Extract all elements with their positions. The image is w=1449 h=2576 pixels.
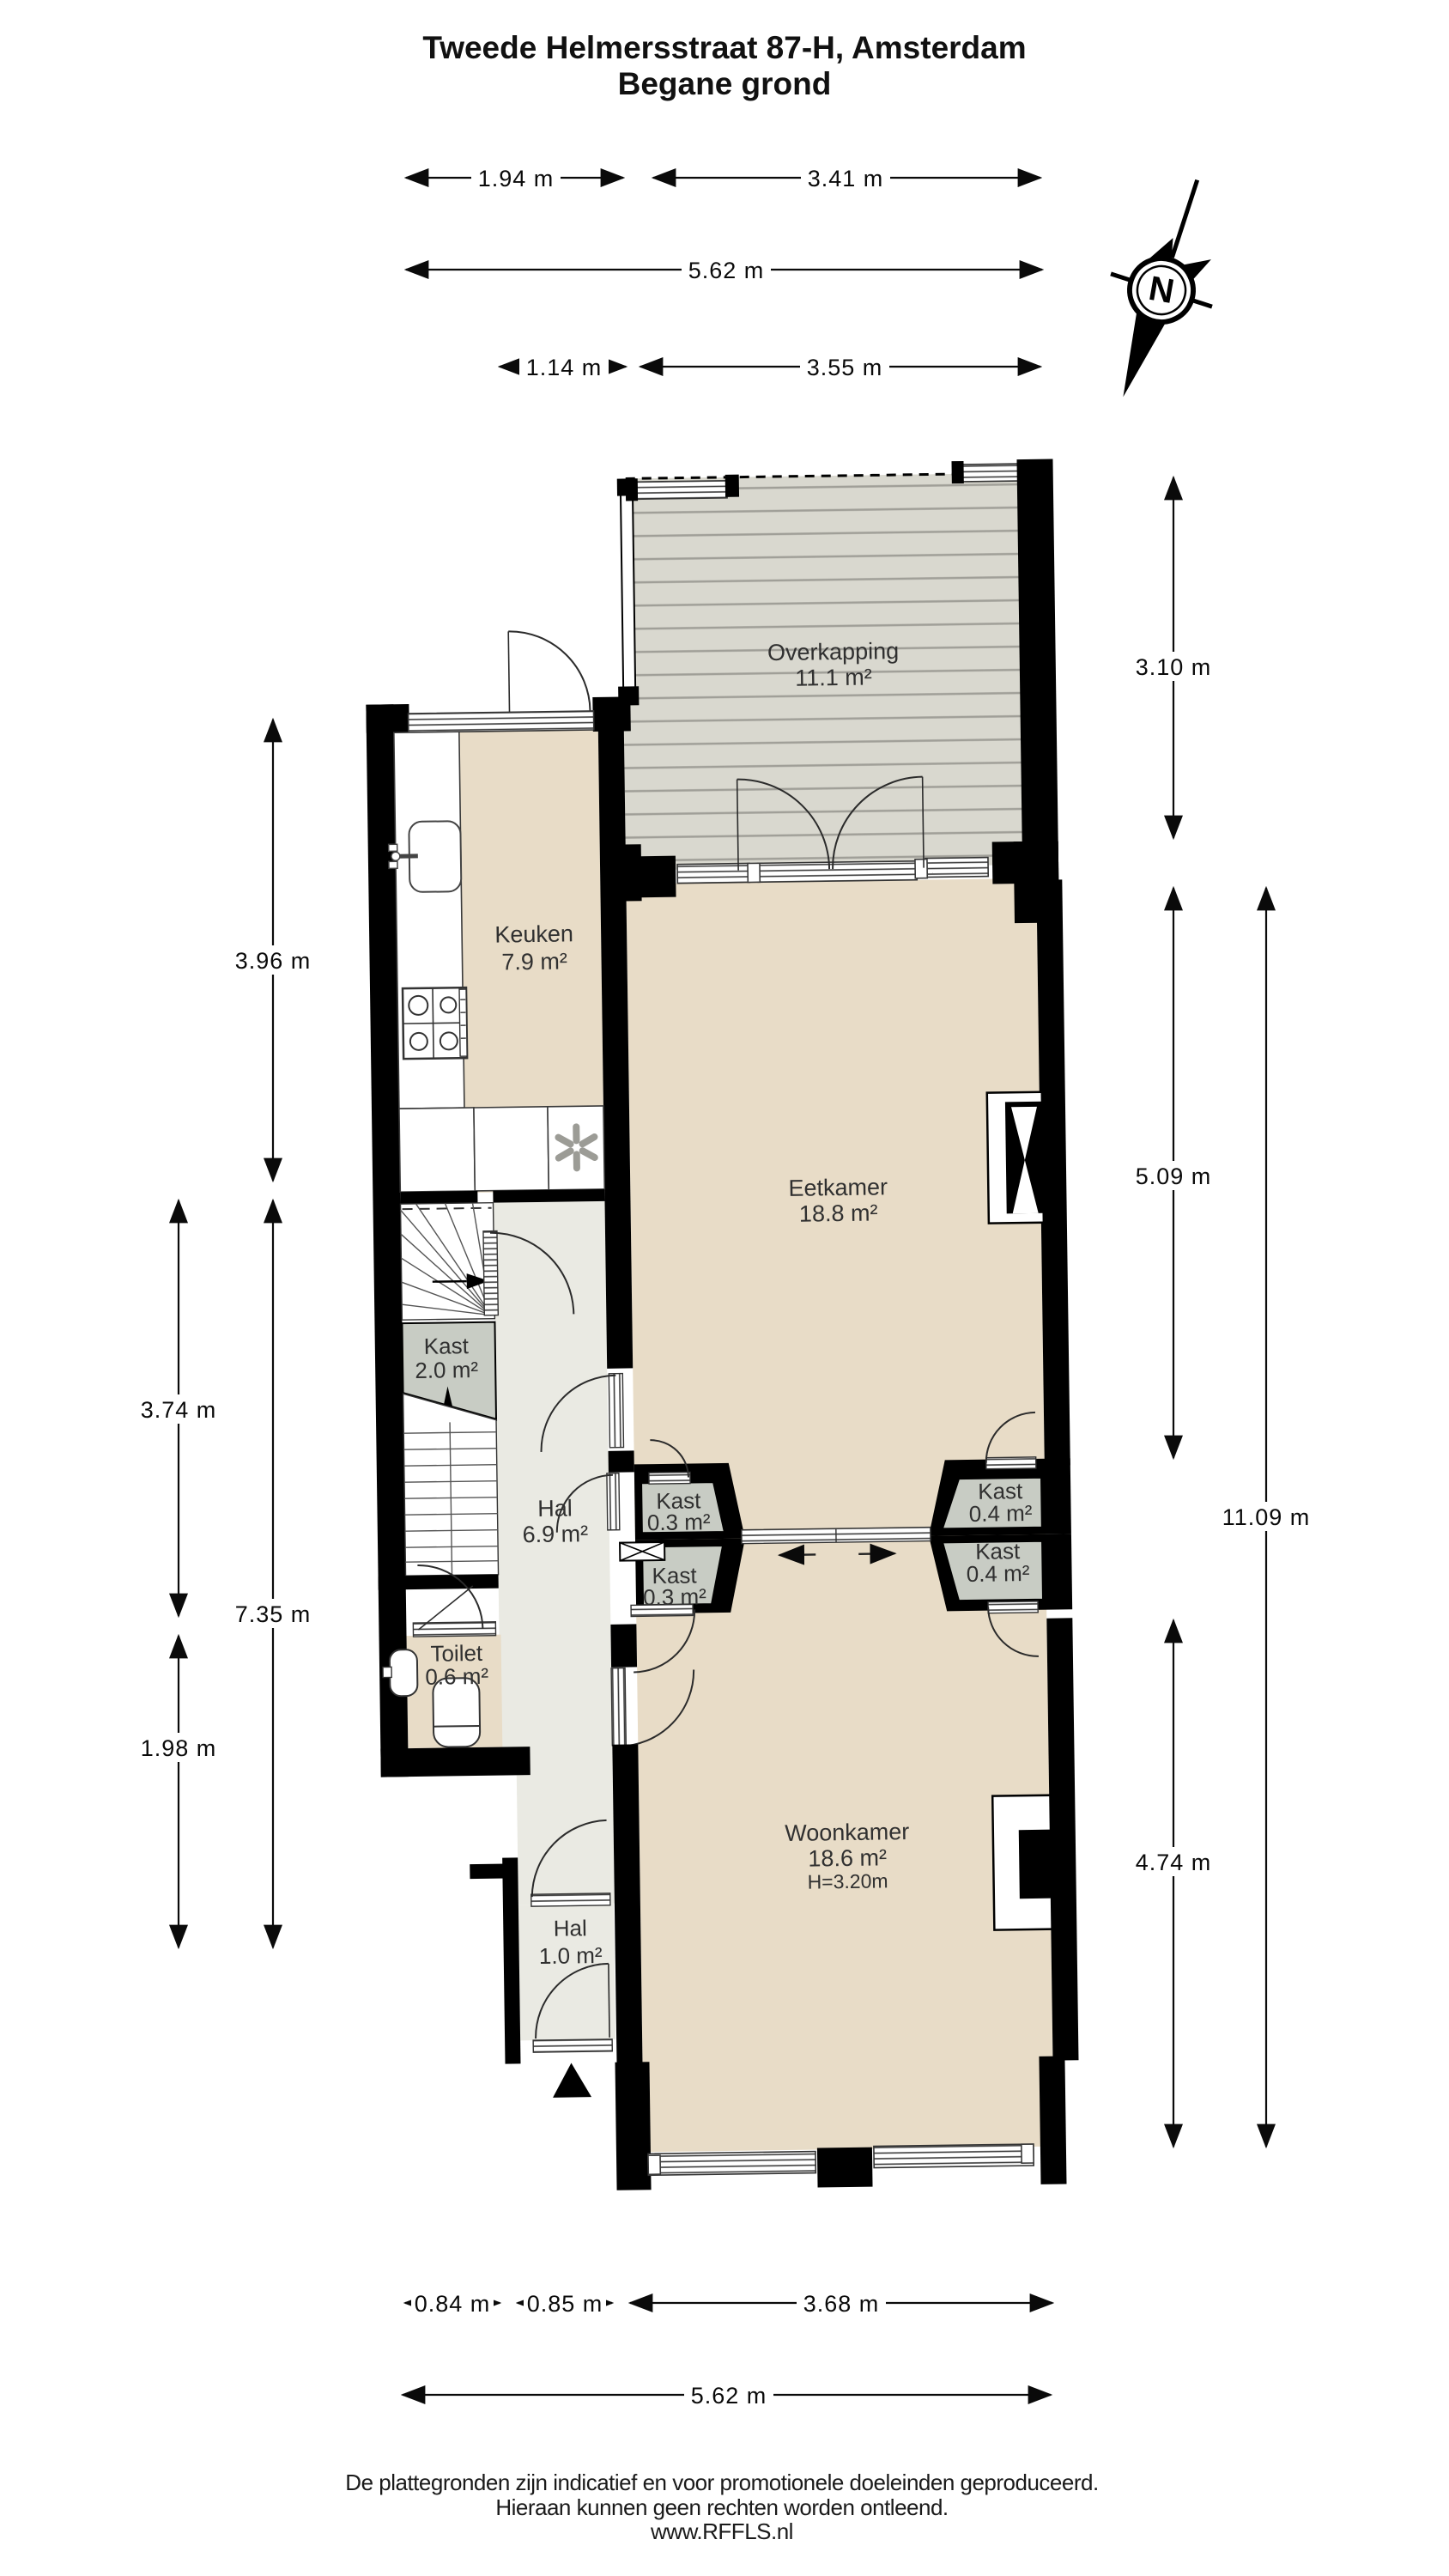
- keuken-bottom-wall-left: [400, 1191, 477, 1204]
- floorplan-page: Tweede Helmersstraat 87-H, Amsterdam Beg…: [0, 0, 1449, 2576]
- kitchen-unit-2: [474, 1107, 549, 1191]
- overkapping-top-right-window: [951, 460, 1018, 483]
- label-kast-lb-area: 0.3 m²: [643, 1583, 706, 1610]
- label-kast-rt-area: 0.4 m²: [969, 1500, 1033, 1527]
- footer-line1: De plattegronden zijn indicatief en voor…: [345, 2470, 1098, 2495]
- footer-line3: www.RFFLS.nl: [650, 2518, 793, 2544]
- dim-top-562: 5.62 m: [688, 258, 765, 283]
- north-compass-icon: N: [1076, 163, 1247, 414]
- chimney-shaft: [987, 1092, 1044, 1224]
- jamb-1: [748, 863, 760, 882]
- hal-floor: [493, 1201, 614, 1905]
- keuken-topleft-corner: [366, 704, 409, 733]
- label-eetkamer: Eetkamer: [788, 1174, 888, 1201]
- floorplan-drawing: Tweede Helmersstraat 87-H, Amsterdam Beg…: [0, 0, 1449, 2576]
- stove: [403, 987, 467, 1059]
- label-hal-entree: Hal: [554, 1915, 587, 1941]
- kitchen-unit-fan: [548, 1106, 604, 1190]
- label-woonkamer-area: 18.6 m²: [808, 1844, 887, 1871]
- glazed-panel: [620, 1542, 664, 1561]
- label-overkapping-area: 11.1 m²: [795, 664, 872, 690]
- eetkamer-topleft-step: [634, 856, 676, 898]
- label-woonkamer: Woonkamer: [785, 1819, 909, 1846]
- facade-pier: [817, 2148, 873, 2188]
- dim-top-114: 1.14 m: [526, 355, 603, 380]
- kitchen-unit-1: [399, 1108, 475, 1192]
- dim-right-474: 4.74 m: [1136, 1850, 1212, 1875]
- label-keuken: Keuken: [494, 920, 573, 947]
- jamb-4: [1022, 2144, 1034, 2163]
- label-toilet-area: 0.6 m²: [425, 1663, 488, 1690]
- facade-window-right: [874, 2144, 1034, 2168]
- label-hal-area: 6.9 m²: [522, 1521, 588, 1547]
- label-hal: Hal: [537, 1495, 573, 1522]
- entree-left-wall: [502, 1857, 520, 2063]
- label-keuken-area: 7.9 m²: [501, 948, 567, 975]
- keuken-bottom-wall-right: [493, 1189, 604, 1203]
- slide-arrow-left: [779, 1554, 815, 1555]
- spine-wall-seg3: [610, 1624, 637, 1667]
- page-title: Tweede Helmersstraat 87-H, Amsterdam Beg…: [422, 30, 1026, 101]
- keuken-top-window: [409, 711, 594, 732]
- dim-right-310: 3.10 m: [1136, 654, 1212, 680]
- dim-bottom-085: 0.85 m: [527, 2291, 603, 2317]
- title-line1: Tweede Helmersstraat 87-H, Amsterdam: [422, 30, 1026, 65]
- dim-bottom-562: 5.62 m: [691, 2383, 767, 2409]
- dim-bottom-368: 3.68 m: [803, 2291, 880, 2317]
- label-eetkamer-area: 18.8 m²: [799, 1200, 878, 1226]
- entree-stub-wall: [470, 1864, 506, 1880]
- label-kast-trap: Kast: [424, 1333, 470, 1359]
- bottomright-corner: [1039, 2056, 1066, 2184]
- toilet-bottom-wall: [380, 1747, 530, 1777]
- dim-left-374: 3.74 m: [141, 1397, 217, 1423]
- woonkamer-niche: [992, 1795, 1052, 1930]
- dim-left-396: 3.96 m: [235, 948, 312, 974]
- dim-right-509: 5.09 m: [1136, 1163, 1212, 1189]
- facade-window-left: [648, 2152, 815, 2176]
- plan-group: Overkapping 11.1 m² Keuken 7.9 m² Eetkam…: [363, 459, 1081, 2193]
- toilet-top-wall: [379, 1575, 499, 1590]
- spine-wall-seg2: [609, 1450, 634, 1472]
- jamb-2: [915, 860, 927, 878]
- entrance-arrow-icon: [552, 2063, 591, 2098]
- footer-disclaimer: De plattegronden zijn indicatief en voor…: [345, 2470, 1098, 2544]
- jamb-3: [648, 2155, 660, 2174]
- label-hal-entree-area: 1.0 m²: [539, 1942, 603, 1969]
- spine-wall-seg4: [612, 1744, 642, 2070]
- label-woonkamer-height: H=3.20m: [807, 1869, 888, 1893]
- title-line2: Begane grond: [618, 66, 832, 101]
- label-kast-trap-area: 2.0 m²: [415, 1357, 478, 1383]
- dim-bottom-084: 0.84 m: [415, 2291, 491, 2317]
- label-overkapping: Overkapping: [767, 638, 899, 665]
- label-kast-rb-area: 0.4 m²: [967, 1560, 1030, 1587]
- dim-top-194: 1.94 m: [478, 166, 555, 191]
- dim-left-735: 7.35 m: [235, 1601, 312, 1627]
- dim-left-198: 1.98 m: [141, 1735, 217, 1761]
- footer-line2: Hieraan kunnen geen rechten worden ontle…: [495, 2494, 948, 2520]
- label-kast-lt-area: 0.3 m²: [647, 1509, 711, 1535]
- dim-top-341: 3.41 m: [808, 166, 884, 191]
- dim-top-355: 3.55 m: [807, 355, 883, 380]
- dim-right-1109: 11.09 m: [1222, 1504, 1311, 1530]
- slide-arrow-right: [858, 1553, 894, 1554]
- french-door-threshold: [758, 861, 917, 883]
- bottomleft-corner: [615, 2062, 651, 2190]
- eetkamer-window-right: [925, 858, 988, 878]
- garden-door: [508, 630, 590, 712]
- overkapping-right-wall: [1016, 459, 1058, 865]
